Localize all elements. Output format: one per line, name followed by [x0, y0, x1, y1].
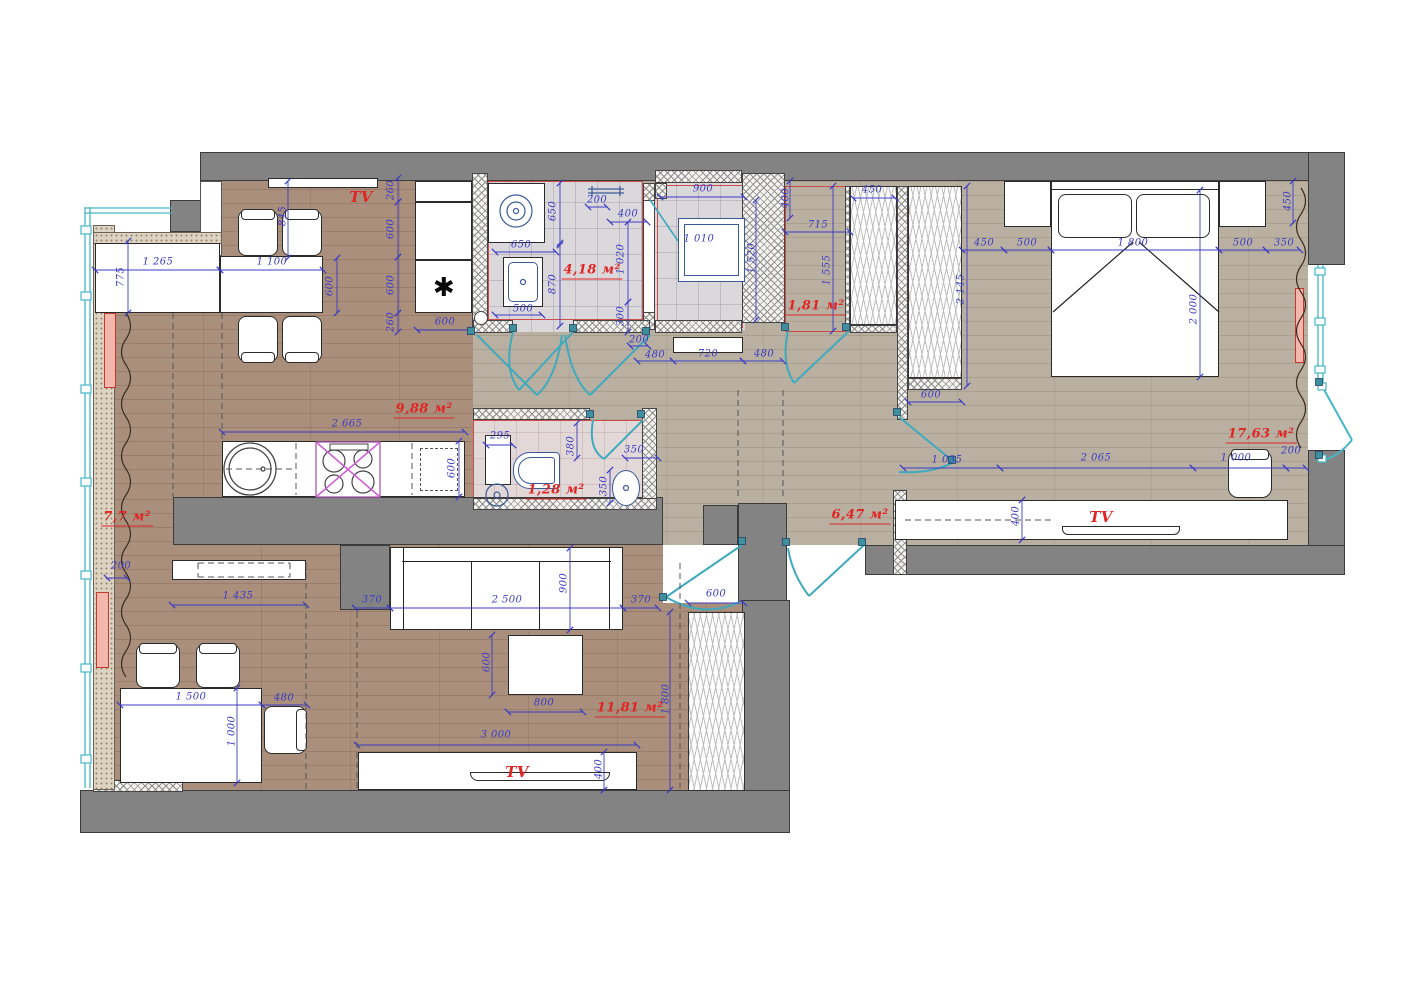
bedroom-window: [1318, 265, 1352, 460]
plan-overlay: [0, 0, 1414, 1000]
stove: [316, 442, 380, 497]
bed-fold: [1053, 242, 1219, 312]
loggia-glazing: [85, 207, 172, 788]
doors: [477, 200, 954, 609]
towel-bar: [588, 186, 624, 196]
washer-drum: [486, 195, 629, 506]
break-lines: [122, 188, 1306, 677]
floor-plan: 8451 2651 1007756002606006002606002 6656…: [0, 0, 1414, 1000]
